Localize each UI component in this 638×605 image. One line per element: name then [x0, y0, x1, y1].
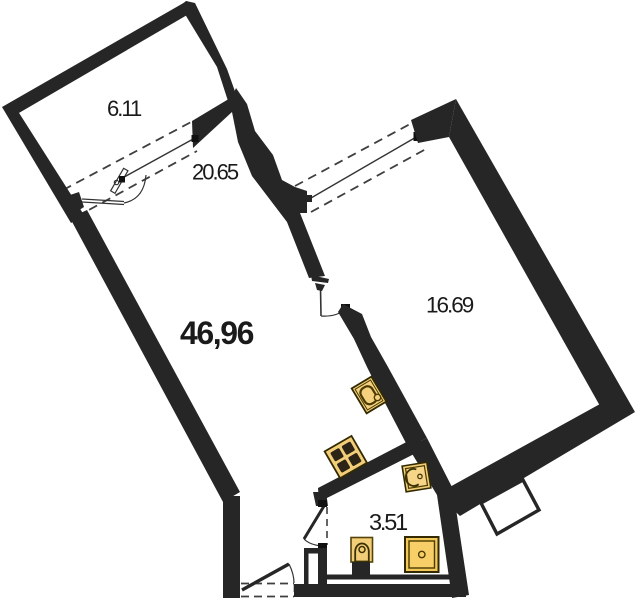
svg-text:20.65: 20.65	[192, 160, 239, 185]
svg-text:46,96: 46,96	[180, 315, 254, 351]
svg-text:16.69: 16.69	[426, 293, 474, 318]
svg-text:6.11: 6.11	[107, 96, 142, 121]
svg-text:3.51: 3.51	[369, 509, 407, 535]
